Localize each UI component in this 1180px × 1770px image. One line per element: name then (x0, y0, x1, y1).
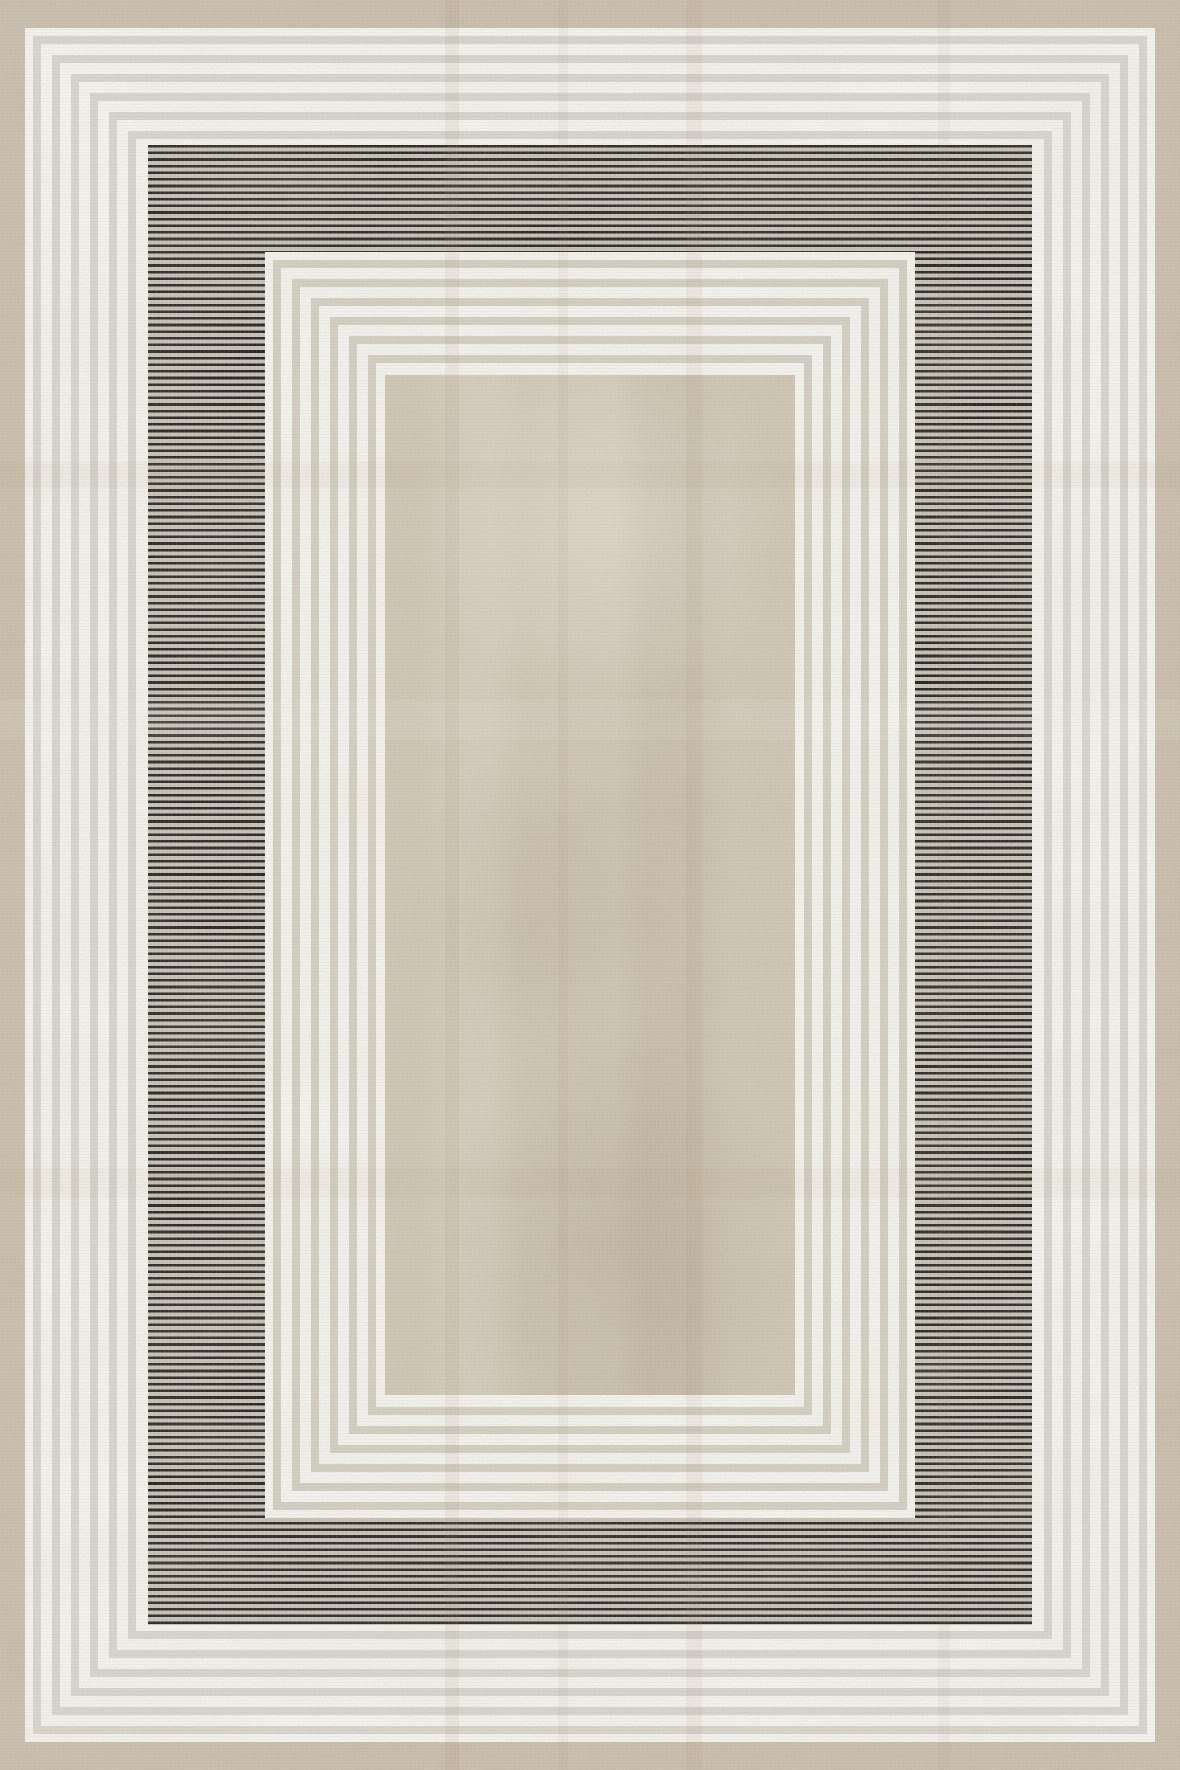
rug (0, 0, 1180, 1770)
center-field (385, 375, 795, 1395)
